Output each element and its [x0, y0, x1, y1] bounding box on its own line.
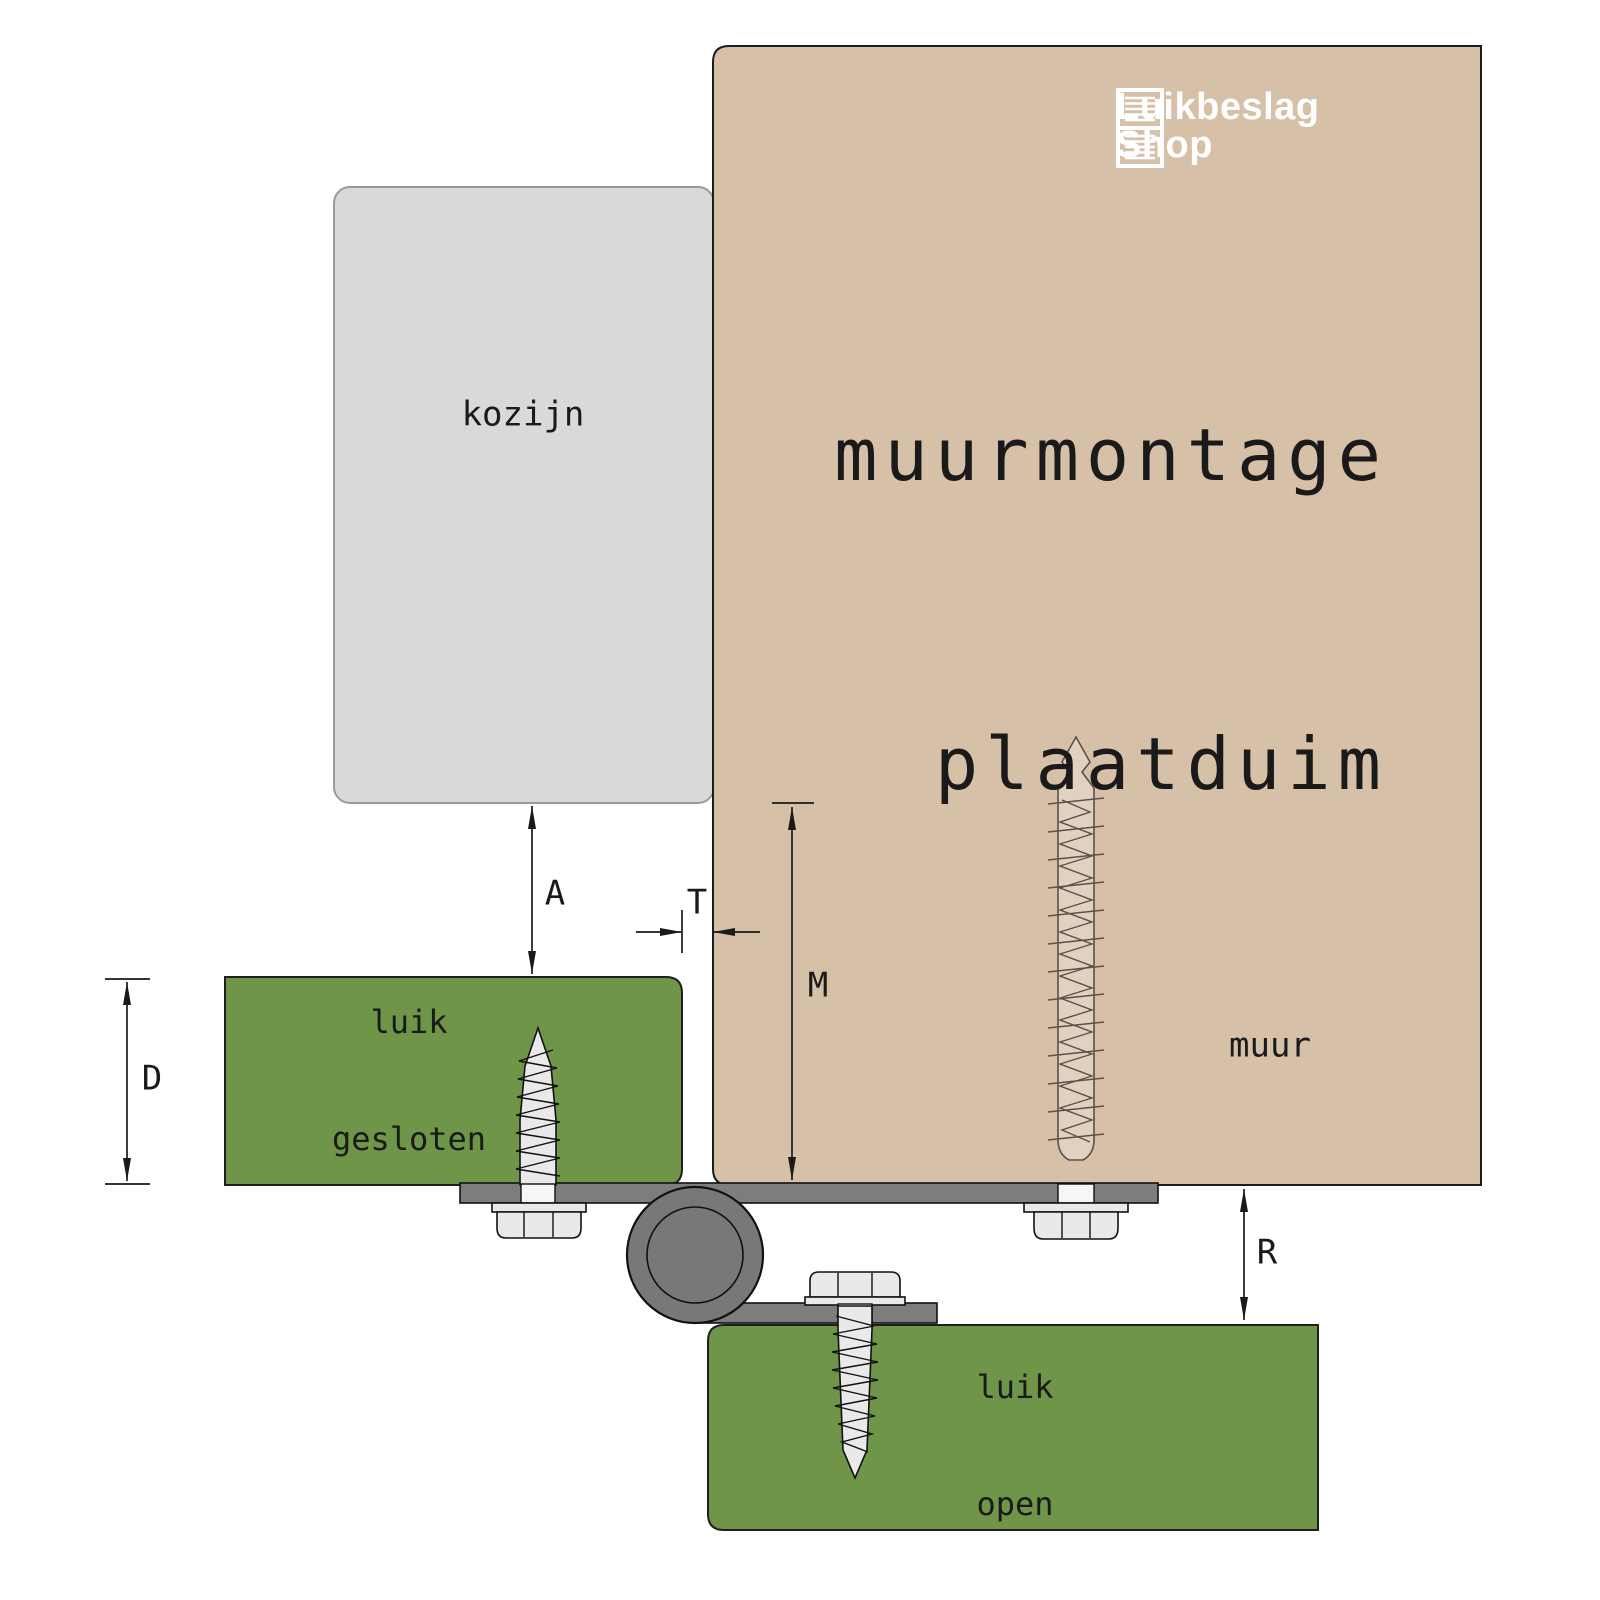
shutter-icon — [1116, 88, 1164, 168]
shutter-open-label-line1: luik — [976, 1368, 1053, 1407]
wall-label: muur — [1229, 1027, 1311, 1066]
hinge-pivot — [627, 1187, 763, 1323]
dimension-a-arrow — [528, 806, 536, 974]
dimension-m-label: M — [808, 967, 828, 1006]
dimension-t-label: T — [687, 884, 707, 923]
shutter-closed-label-line2: gesloten — [332, 1120, 486, 1159]
diagram-stage: Luikbeslag Shop muurmontage plaatduim ko… — [0, 0, 1600, 1600]
diagram-title: muurmontage plaatduim — [834, 198, 1388, 1022]
diagram-title-line1: muurmontage — [834, 404, 1388, 507]
shutter-open-label-line2: open — [976, 1485, 1053, 1524]
shutter-closed-label: luik gesloten — [332, 925, 486, 1237]
dimension-a-label: A — [545, 875, 565, 914]
dimension-d-label: D — [142, 1060, 162, 1099]
dimension-r-arrow — [1240, 1189, 1248, 1320]
diagram-title-line2: plaatduim — [834, 713, 1388, 816]
hinge-upper-plate — [460, 1183, 1158, 1203]
dimension-r-label: R — [1257, 1234, 1277, 1273]
shutter-closed-label-line1: luik — [332, 1003, 486, 1042]
frame-label: kozijn — [462, 396, 585, 435]
shutter-open-label: luik open — [976, 1290, 1053, 1600]
frame-shape — [334, 187, 714, 803]
brand-logo: Luikbeslag Shop — [1116, 88, 1320, 164]
